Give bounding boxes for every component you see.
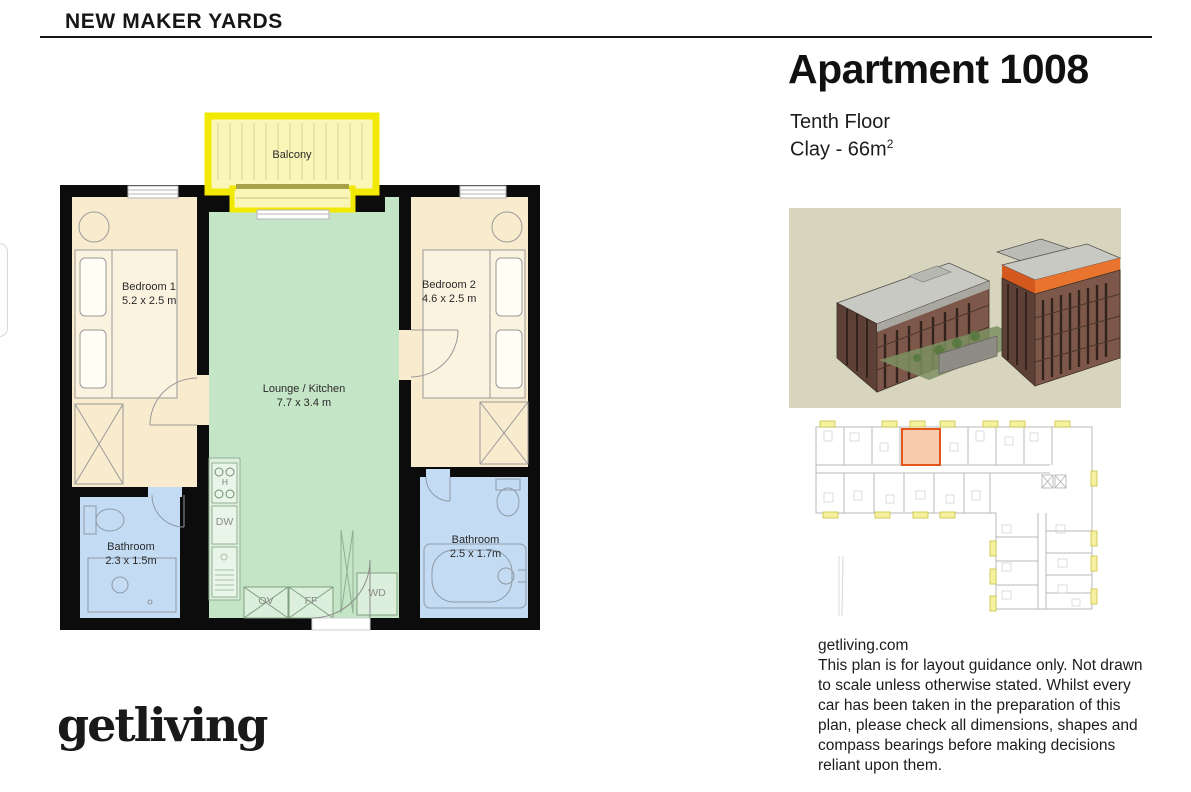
bedroom1-name: Bedroom 1 [122,281,176,293]
bedroom2-dims: 4.6 x 2.5 m [422,292,517,306]
balcony-area [208,116,376,210]
window-bedroom1 [128,186,178,198]
highlighted-unit [902,429,940,465]
bathroom2-dims: 2.5 x 1.7m [428,547,523,561]
site-plan-drawing [810,413,1105,625]
lounge-dims: 7.7 x 3.4 m [214,396,394,410]
bedroom2-label: Bedroom 2 4.6 x 2.5 m [422,278,517,307]
left-edge-panel-tab[interactable] [0,243,8,337]
fridge-freezer-label: FF [289,595,333,609]
site-plan [810,413,1105,625]
bedroom2-name: Bedroom 2 [422,279,476,291]
balcony-label: Balcony [208,148,376,162]
apartment-type-text: Clay - 66m [790,139,887,161]
lounge-label: Lounge / Kitchen 7.7 x 3.4 m [214,382,394,411]
window-bedroom2 [460,186,506,198]
lounge-name: Lounge / Kitchen [263,383,346,395]
bathroom1-dims: 2.3 x 1.5m [85,554,177,568]
bedroom1-dims: 5.2 x 2.5 m [122,294,212,308]
info-block: getliving.com This plan is for layout gu… [818,636,1154,776]
area-superscript: 2 [887,137,894,151]
project-name: NEW MAKER YARDS [65,10,283,34]
apartment-title: Apartment 1008 [788,46,1089,93]
bathroom1-label: Bathroom 2.3 x 1.5m [85,540,177,569]
washer-dryer-label: WD [357,587,397,601]
bathroom2-label: Bathroom 2.5 x 1.7m [428,533,523,562]
hob-label: H [217,477,233,488]
apartment-floor: Tenth Floor [790,111,890,134]
bathroom2-name: Bathroom [452,534,500,546]
floorplan-canvas: Balcony Bedroom 1 5.2 x 2.5 m Bedroom 2 … [60,110,540,635]
building-render [789,208,1121,408]
brochure-page: NEW MAKER YARDS Apartment 1008 Tenth Flo… [0,0,1191,792]
getliving-logo: getliving [57,698,266,752]
website-link[interactable]: getliving.com [818,636,1154,656]
dishwasher-label: DW [212,516,237,530]
bathroom1-name: Bathroom [107,541,155,553]
bedroom1-label: Bedroom 1 5.2 x 2.5 m [122,280,212,309]
building-render-drawing [789,208,1121,408]
site-boundary-line [839,556,843,616]
oven-label: OV [244,595,288,609]
apartment-type-area: Clay - 66m2 [790,137,893,162]
disclaimer-text: This plan is for layout guidance only. N… [818,657,1143,774]
header-divider [40,36,1152,38]
